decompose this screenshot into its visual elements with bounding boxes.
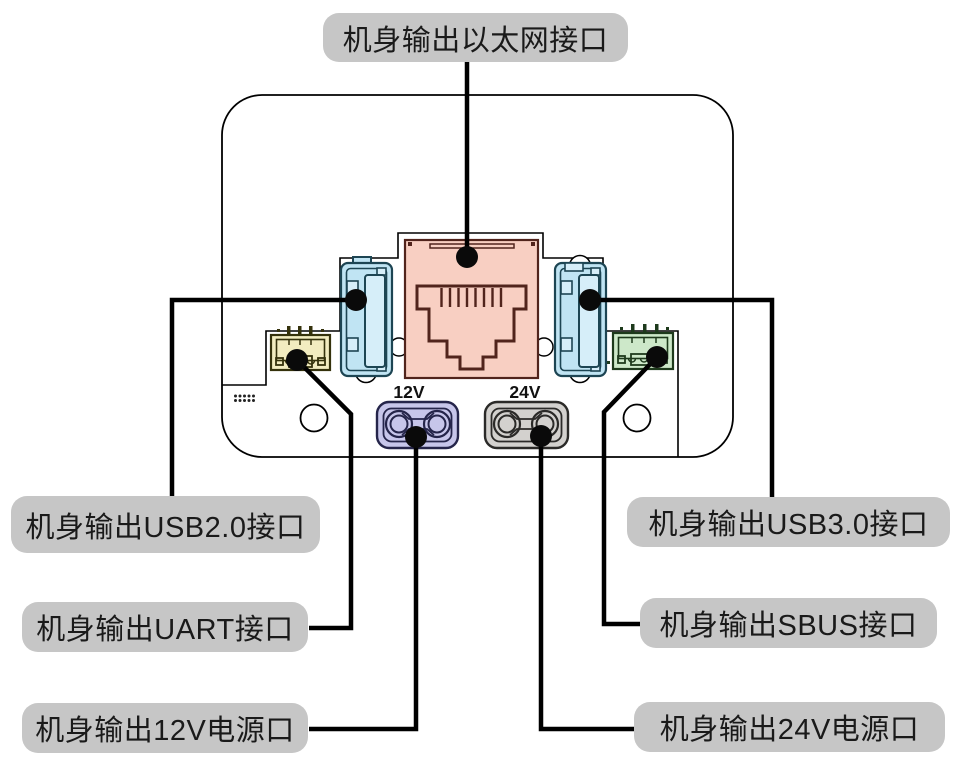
- dot-power24v: [530, 425, 552, 447]
- label-power24v: 机身输出24V电源口: [634, 702, 945, 752]
- usb2-tongue: [365, 275, 385, 367]
- leader-power24v: [541, 436, 634, 729]
- usb2-port: [341, 257, 392, 376]
- dot-usb3: [579, 289, 601, 311]
- label-uart: 机身输出UART接口: [22, 602, 308, 652]
- dot-power12v: [405, 426, 427, 448]
- label-usb2: 机身输出USB2.0接口: [11, 496, 320, 553]
- dot-usb2: [345, 289, 367, 311]
- dot-uart: [286, 349, 308, 371]
- power12v-marking: 12V: [393, 382, 424, 402]
- label-usb3: 机身输出USB3.0接口: [627, 497, 950, 547]
- label-sbus: 机身输出SBUS接口: [640, 598, 937, 648]
- screw-hole-left: [301, 405, 328, 432]
- power24v-port: [485, 402, 568, 448]
- dot-sbus: [646, 346, 668, 368]
- usb3-tongue: [579, 275, 599, 367]
- usb3-port: [555, 263, 606, 376]
- power24v-marking: 24V: [509, 382, 540, 402]
- screw-hole-right: [624, 405, 651, 432]
- label-ethernet: 机身输出以太网接口: [323, 13, 628, 62]
- leader-power12v: [309, 437, 416, 729]
- device-drawing: 12V 24V: [0, 0, 964, 770]
- label-power12v: 机身输出12V电源口: [22, 703, 308, 753]
- port-diagram: 12V 24V: [0, 0, 964, 770]
- dot-ethernet: [456, 246, 478, 268]
